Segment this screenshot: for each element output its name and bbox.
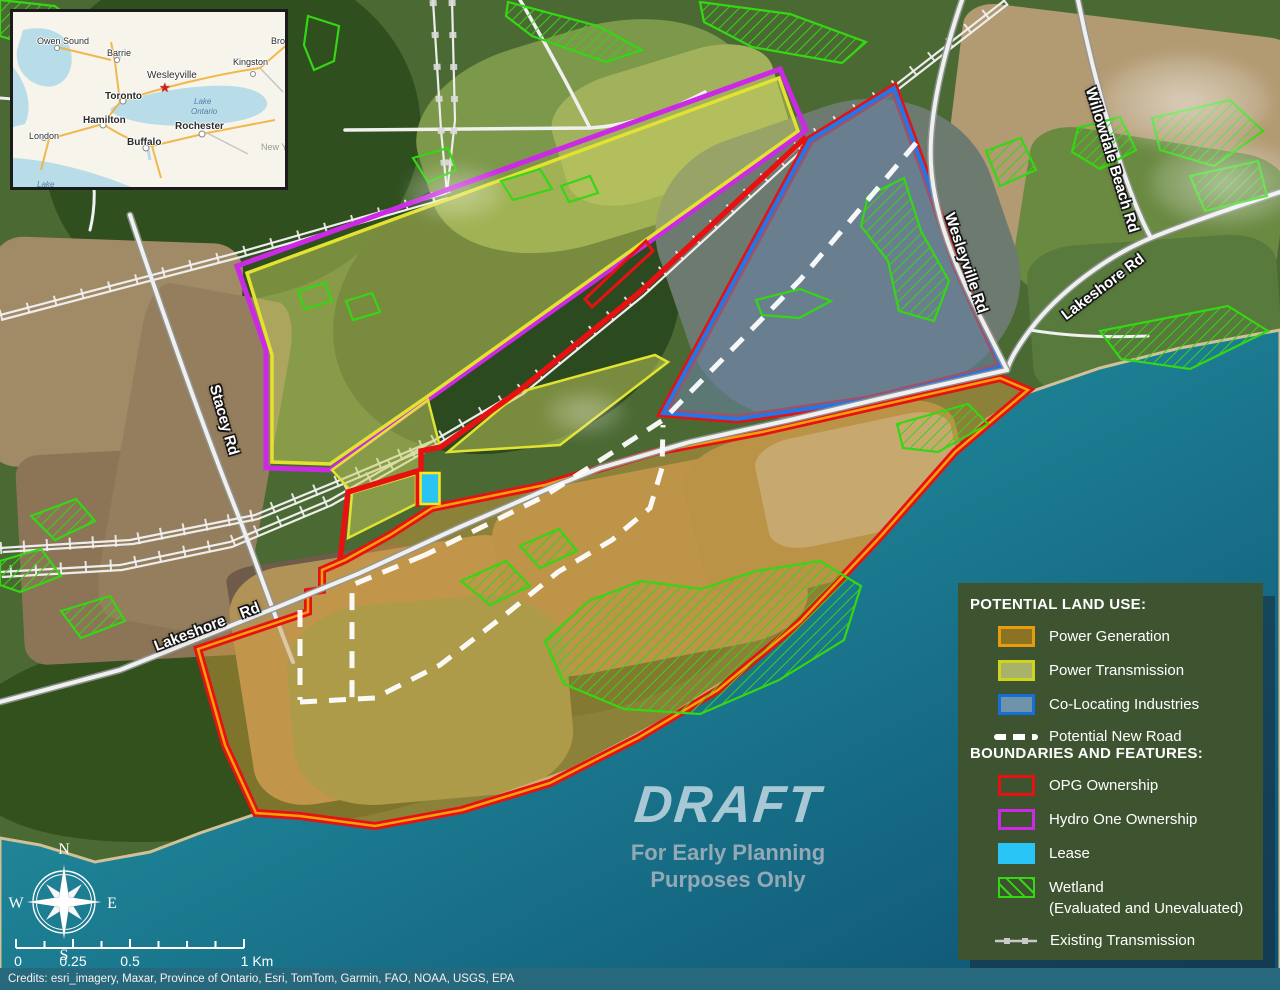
scale-bar: 0 0.25 0.5 1 Km [14, 930, 304, 972]
city-label-london: London [29, 131, 59, 141]
credits-bar: Credits: esri_imagery, Maxar, Province o… [0, 968, 1280, 990]
city-label-hamilton: Hamilton [83, 115, 126, 126]
legend-row-power-transmission: Power Transmission [998, 660, 1253, 681]
legend-label: Wetland [1049, 879, 1104, 896]
legend-row-hydro-one: Hydro One Ownership [998, 809, 1253, 830]
power-generation-swatch [998, 626, 1035, 647]
city-dot [115, 58, 120, 63]
city-dot [251, 72, 256, 77]
new-york-label: New Y [261, 142, 287, 152]
legend-label: Co-Locating Industries [1049, 696, 1199, 713]
city-label-barrie: Barrie [107, 48, 131, 58]
lake-erie-label: Lake [37, 180, 54, 189]
power-transmission-swatch [998, 660, 1035, 681]
wetland-outline [304, 16, 339, 70]
compass-e-label: E [107, 895, 117, 912]
legend-land-use-title: POTENTIAL LAND USE: [970, 596, 1253, 613]
city-label-rochester: Rochester [175, 121, 224, 132]
city-label-kingston: Kingston [233, 57, 268, 67]
scale-label-025: 0.25 [59, 953, 86, 969]
city-label-toronto: Toronto [105, 91, 142, 102]
legend-row-opg: OPG Ownership [998, 775, 1253, 796]
co-locating-swatch [998, 694, 1035, 715]
legend-row-co-locating: Co-Locating Industries [998, 694, 1253, 715]
legend-label: Power Generation [1049, 628, 1170, 645]
cloud [1100, 55, 1270, 150]
legend-boundaries-title: BOUNDARIES AND FEATURES: [970, 745, 1253, 762]
lake-ontario-label-2: Ontario [191, 107, 217, 116]
legend-panel: POTENTIAL LAND USE: Power Generation Pow… [958, 583, 1263, 960]
wetland-polygon [986, 138, 1036, 186]
scale-label-1km: 1 Km [241, 953, 274, 969]
city-label-owen-sound: Owen Sound [37, 36, 89, 46]
wetland-polygon [61, 596, 125, 638]
city-label-buffalo: Buffalo [127, 137, 161, 148]
legend-row-potential-road: Potential New Road [994, 728, 1253, 745]
opg-ownership-swatch [998, 775, 1035, 796]
inset-locator-map: Owen Sound Barrie Kingston Brockville We… [10, 9, 288, 190]
lease-area [421, 473, 440, 504]
wesleyville-star-icon: ★ [159, 81, 171, 94]
legend-row-lease: Lease [998, 843, 1253, 864]
legend-label: OPG Ownership [1049, 777, 1158, 794]
legend-row-power-generation: Power Generation [998, 626, 1253, 647]
wetland-polygon [700, 2, 866, 63]
legend-row-existing-transmission: Existing Transmission [994, 932, 1253, 949]
wetland-swatch [998, 877, 1035, 898]
compass-n-label: N [58, 841, 70, 858]
lease-swatch [998, 843, 1035, 864]
city-label-wesleyville: Wesleyville [147, 70, 197, 81]
wetland-sub-label: (Evaluated and Unevaluated) [1049, 900, 1253, 917]
draft-subtitle: For Early Planning Purposes Only [608, 839, 848, 894]
compass-cardinal-star [26, 864, 102, 940]
city-dot [55, 46, 60, 51]
legend-label: Lease [1049, 845, 1090, 862]
legend-label: Hydro One Ownership [1049, 811, 1197, 828]
scale-label-05: 0.5 [120, 953, 140, 969]
potential-road-swatch [994, 734, 1038, 740]
draft-title: DRAFT [605, 778, 851, 833]
cloud [405, 165, 505, 220]
legend-label: Power Transmission [1049, 662, 1184, 679]
legend-label: Existing Transmission [1050, 932, 1195, 949]
hydro-one-ownership-swatch [998, 809, 1035, 830]
legend-row-wetland: Wetland [998, 877, 1253, 898]
scale-label-0: 0 [14, 953, 22, 969]
wetland-polygon [31, 499, 95, 540]
legend-label: Potential New Road [1049, 728, 1182, 745]
draft-subtitle-line2: Purposes Only [608, 866, 848, 894]
map-page: Willowdale Beach Rd Lakeshore Rd Wesleyv… [0, 0, 1280, 990]
existing-transmission-swatch [994, 935, 1038, 947]
lake-ontario-label-1: Lake [194, 97, 211, 106]
city-label-brockville: Brockville [271, 36, 288, 46]
compass-w-label: W [8, 895, 24, 912]
draft-watermark: DRAFT For Early Planning Purposes Only [608, 778, 848, 894]
draft-subtitle-line1: For Early Planning [608, 839, 848, 867]
wetland-polygon [0, 549, 61, 592]
cloud [545, 390, 625, 435]
wetland-polygon [506, 2, 642, 62]
